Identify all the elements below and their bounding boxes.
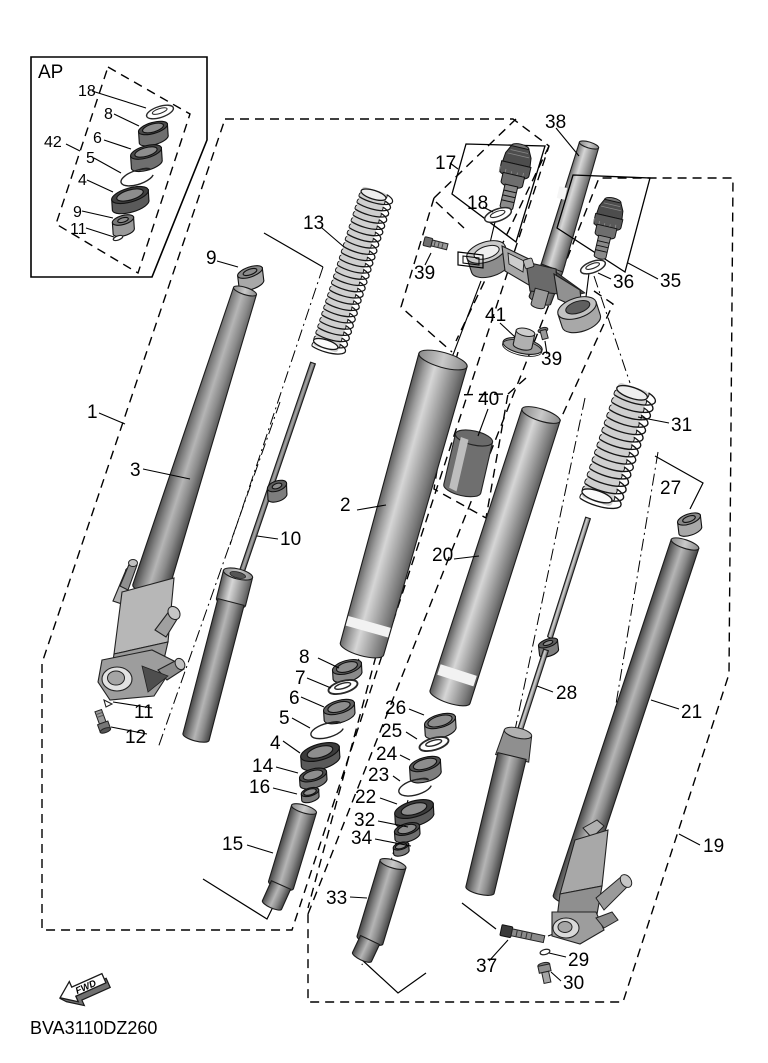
svg-text:4: 4 bbox=[78, 172, 87, 189]
svg-text:37: 37 bbox=[476, 956, 497, 977]
svg-text:5: 5 bbox=[279, 708, 290, 729]
svg-text:4: 4 bbox=[270, 733, 281, 754]
svg-text:33: 33 bbox=[326, 888, 347, 909]
svg-text:23: 23 bbox=[368, 765, 389, 786]
svg-text:3: 3 bbox=[130, 460, 141, 481]
svg-text:36: 36 bbox=[613, 272, 634, 293]
svg-text:6: 6 bbox=[289, 688, 300, 709]
svg-text:39: 39 bbox=[414, 263, 435, 284]
svg-text:41: 41 bbox=[485, 305, 506, 326]
svg-text:14: 14 bbox=[252, 756, 274, 777]
svg-text:AP: AP bbox=[38, 62, 63, 83]
svg-text:13: 13 bbox=[303, 213, 324, 234]
svg-text:28: 28 bbox=[556, 683, 577, 704]
svg-text:17: 17 bbox=[435, 153, 456, 174]
svg-text:40: 40 bbox=[478, 389, 499, 410]
svg-text:22: 22 bbox=[355, 787, 376, 808]
svg-text:5: 5 bbox=[86, 150, 95, 167]
svg-text:34: 34 bbox=[351, 828, 373, 849]
svg-text:8: 8 bbox=[104, 106, 113, 123]
svg-text:9: 9 bbox=[206, 248, 217, 269]
svg-text:10: 10 bbox=[280, 529, 301, 550]
svg-text:27: 27 bbox=[660, 478, 681, 499]
svg-text:30: 30 bbox=[563, 973, 584, 994]
svg-text:9: 9 bbox=[73, 204, 82, 221]
svg-text:42: 42 bbox=[44, 134, 62, 151]
svg-text:BVA3110DZ260: BVA3110DZ260 bbox=[30, 1018, 157, 1038]
svg-text:11: 11 bbox=[70, 221, 87, 238]
svg-text:25: 25 bbox=[381, 721, 402, 742]
svg-text:24: 24 bbox=[376, 744, 398, 765]
svg-text:26: 26 bbox=[385, 698, 406, 719]
svg-text:20: 20 bbox=[432, 545, 453, 566]
svg-text:39: 39 bbox=[541, 349, 562, 370]
svg-text:35: 35 bbox=[660, 271, 681, 292]
svg-text:1: 1 bbox=[87, 402, 98, 423]
svg-text:15: 15 bbox=[222, 834, 243, 855]
svg-text:29: 29 bbox=[568, 950, 589, 971]
svg-text:19: 19 bbox=[703, 836, 724, 857]
svg-text:38: 38 bbox=[545, 112, 566, 133]
svg-text:8: 8 bbox=[299, 647, 310, 668]
svg-text:16: 16 bbox=[249, 777, 270, 798]
svg-text:6: 6 bbox=[93, 130, 102, 147]
svg-text:21: 21 bbox=[681, 702, 702, 723]
svg-text:31: 31 bbox=[671, 415, 692, 436]
svg-text:2: 2 bbox=[340, 495, 351, 516]
svg-text:18: 18 bbox=[467, 193, 488, 214]
svg-text:7: 7 bbox=[295, 668, 306, 689]
